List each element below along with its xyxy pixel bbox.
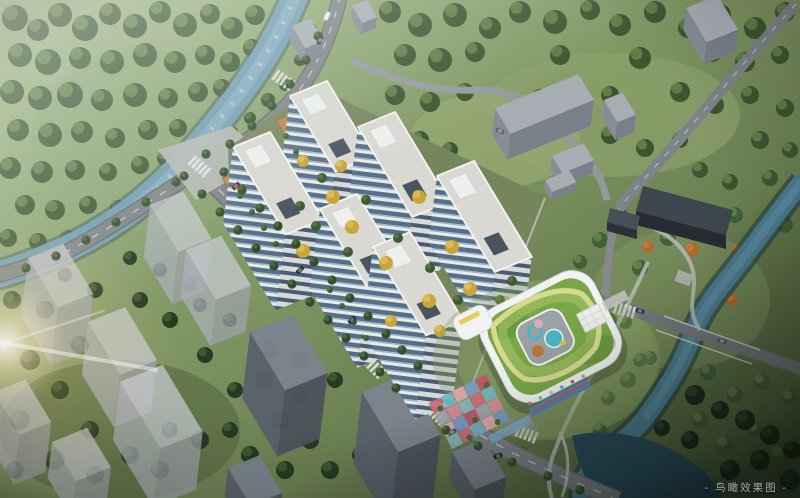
corner-shadow bbox=[0, 0, 800, 498]
caption-text: - 鸟瞰效果图 - bbox=[705, 480, 788, 495]
atmosphere-layer bbox=[0, 0, 800, 498]
aerial-rendering: - 鸟瞰效果图 - bbox=[0, 0, 800, 498]
rendering-canvas bbox=[0, 0, 800, 498]
